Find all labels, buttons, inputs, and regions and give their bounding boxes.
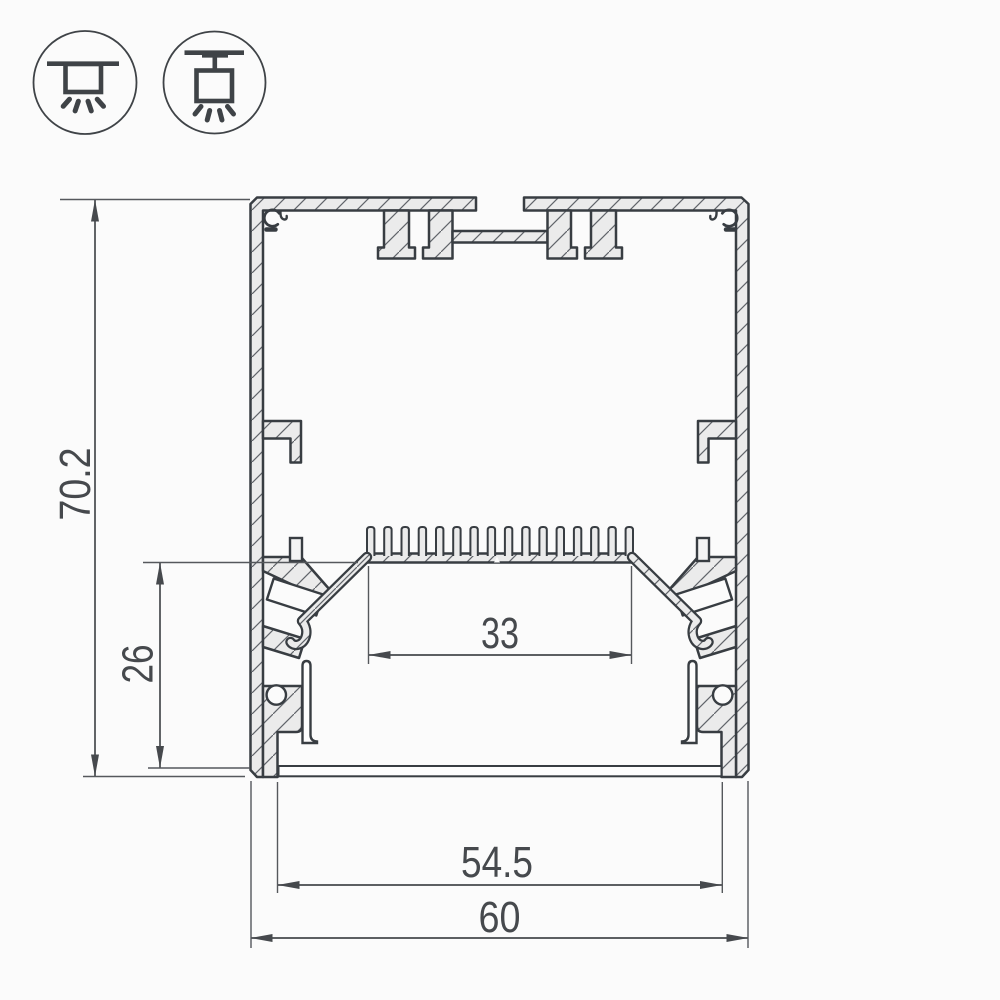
svg-text:33: 33 bbox=[481, 609, 519, 658]
svg-text:70.2: 70.2 bbox=[51, 448, 100, 521]
svg-text:60: 60 bbox=[479, 893, 521, 942]
svg-text:26: 26 bbox=[114, 645, 163, 684]
svg-text:54.5: 54.5 bbox=[461, 838, 533, 887]
